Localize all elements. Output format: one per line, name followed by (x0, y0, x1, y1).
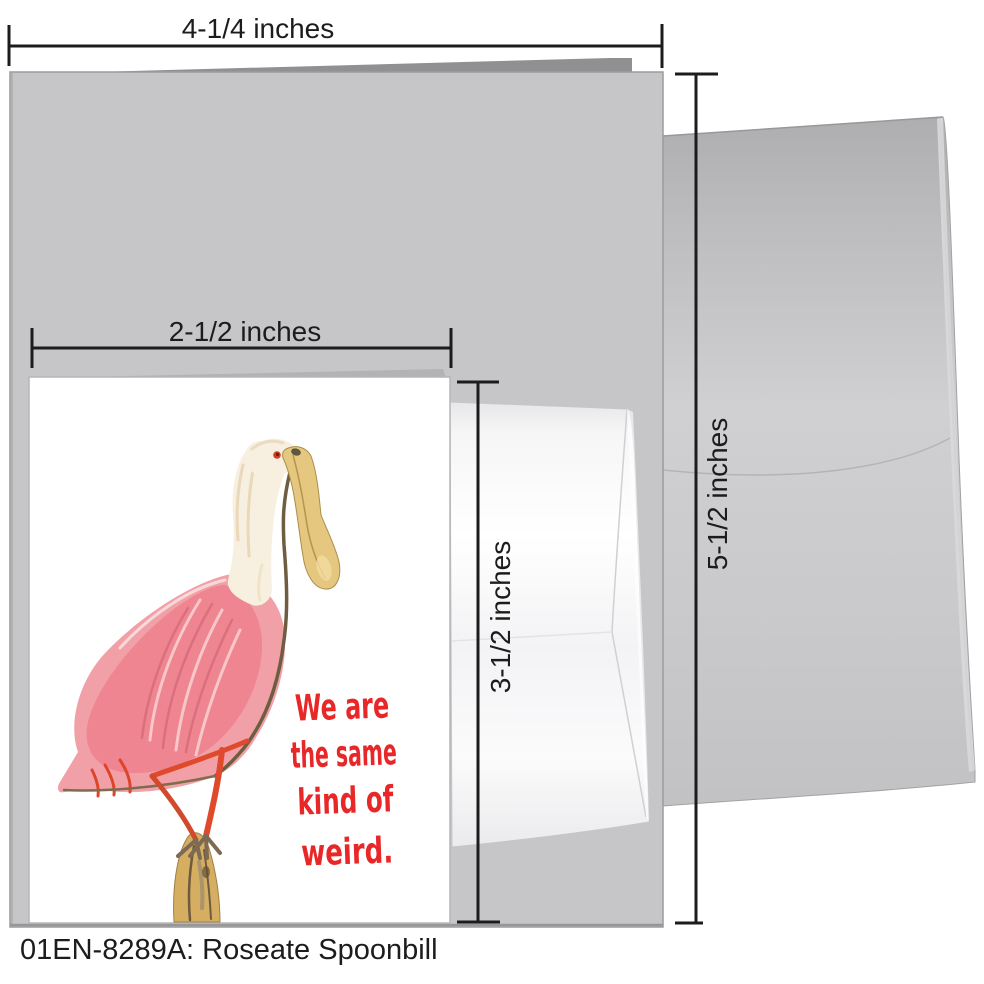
message-line-4: weird. (300, 830, 393, 874)
bird-toe-5 (206, 836, 207, 858)
product-mockup-page: We are the same kind of weird. 4-1/4 inc… (0, 0, 984, 984)
branch-knot (202, 866, 210, 878)
product-mockup-image: We are the same kind of weird. 4-1/4 inc… (0, 0, 984, 984)
large-card-back-fold (60, 58, 632, 73)
small-card-height-label: 3-1/2 inches (485, 541, 516, 694)
small-greeting-card: We are the same kind of weird. (29, 369, 450, 923)
message-line-2: the same (290, 732, 397, 777)
product-caption: 01EN-8289A: Roseate Spoonbill (20, 934, 438, 966)
large-card-width-label: 4-1/4 inches (182, 13, 335, 44)
message-line-3: kind of (297, 779, 395, 823)
small-envelope (450, 402, 649, 847)
large-card-height-label: 5-1/2 inches (702, 418, 733, 571)
bird-eye-pupil (276, 453, 279, 456)
message-line-1: We are (294, 685, 389, 729)
small-card-width-label: 2-1/2 inches (169, 316, 322, 347)
small-envelope-body (450, 402, 649, 847)
